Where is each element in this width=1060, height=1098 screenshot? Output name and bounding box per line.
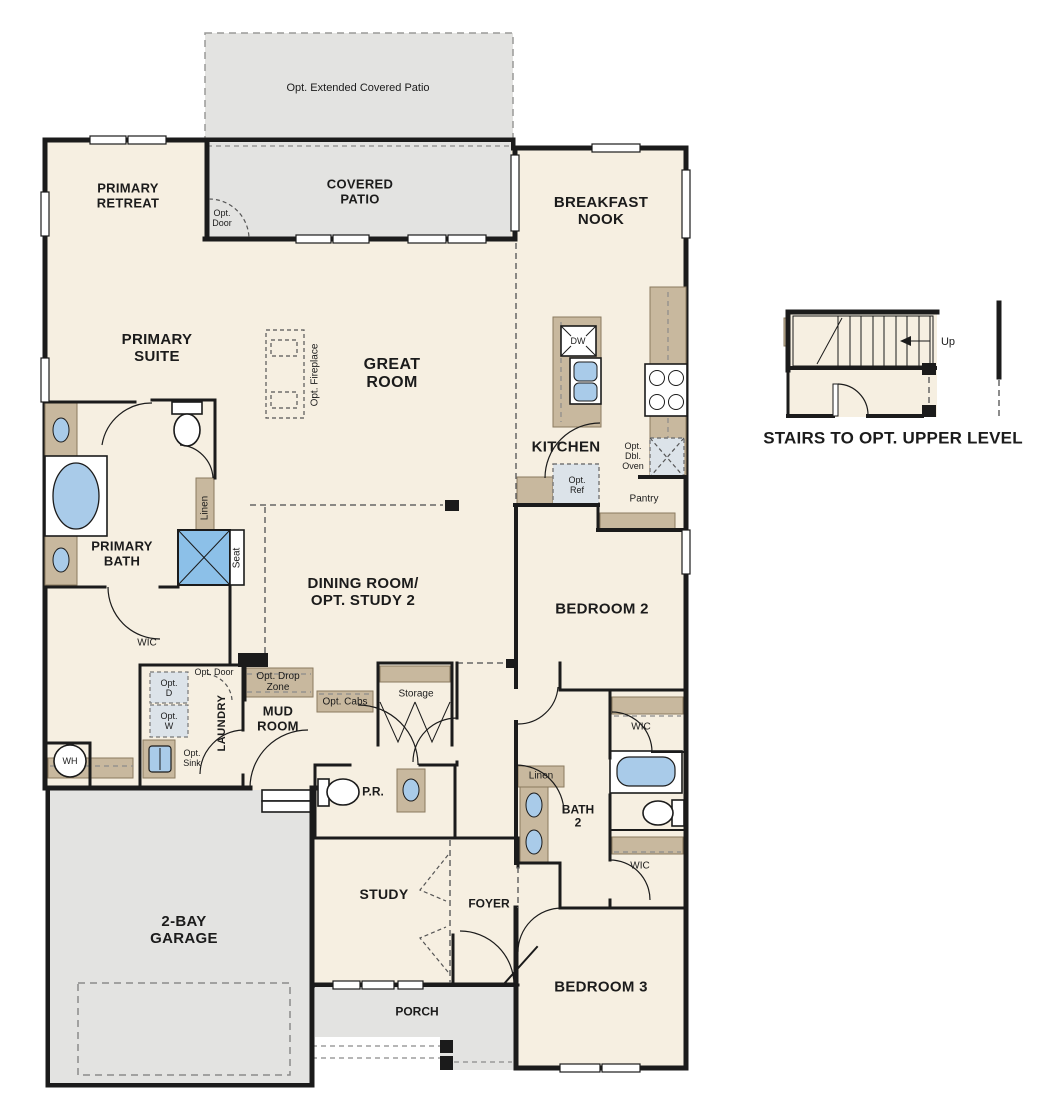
label-opt-extended-patio: Opt. Extended Covered Patio (286, 82, 429, 94)
label-powder-room: P.R. (362, 785, 384, 798)
label-opt-washer: Opt. W (160, 711, 177, 731)
window-icon (398, 981, 423, 989)
laundry-sink-icon (149, 746, 171, 772)
bathtub-icon (610, 751, 682, 793)
label-opt-drop-zone: Opt. Drop Zone (256, 671, 299, 693)
toilet-icon (172, 402, 202, 446)
window-icon (408, 235, 446, 243)
label-garage: 2-BAY GARAGE (150, 914, 218, 948)
double-oven-icon (650, 438, 684, 477)
label-linen-bath2: Linen (529, 770, 553, 781)
toilet-icon (643, 800, 684, 826)
label-dining-room: DINING ROOM/ OPT. STUDY 2 (307, 576, 418, 610)
label-primary-bath: PRIMARY BATH (91, 539, 153, 568)
sink-icon (526, 830, 542, 854)
window-icon (682, 170, 690, 238)
label-stairs-up: Up (941, 336, 955, 348)
floor-plan: Opt. Extended Covered Patio PRIMARY RETR… (0, 0, 1060, 1098)
label-seat: Seat (231, 548, 242, 569)
window-icon (333, 981, 360, 989)
label-bedroom-3: BEDROOM 3 (554, 980, 648, 997)
label-mud-room: MUD ROOM (257, 704, 299, 733)
toilet-icon (318, 779, 359, 806)
window-icon (560, 1064, 600, 1072)
window-icon (41, 192, 49, 236)
window-icon (296, 235, 331, 243)
label-opt-sink: Opt. Sink (183, 748, 201, 768)
label-primary-suite: PRIMARY SUITE (122, 332, 193, 366)
label-linen-primary: Linen (199, 496, 210, 520)
stairs-inset (788, 303, 999, 417)
sink-icon (526, 793, 542, 817)
label-bedroom-2: BEDROOM 2 (555, 602, 649, 619)
label-covered-patio: COVERED PATIO (327, 177, 393, 206)
label-breakfast-nook: BREAKFAST NOOK (554, 195, 648, 229)
window-icon (333, 235, 369, 243)
label-opt-dryer: Opt. D (160, 678, 177, 698)
label-wic-bedroom3: WIC (630, 860, 649, 871)
label-laundry: LAUNDRY (216, 695, 228, 752)
label-porch: PORCH (395, 1005, 438, 1018)
label-opt-dbl-oven: Opt. Dbl. Oven (622, 441, 644, 471)
label-dishwasher: DW (571, 336, 586, 346)
window-icon (592, 144, 640, 152)
label-opt-door-patio: Opt. Door (212, 208, 232, 228)
label-wic-primary: WIC (137, 637, 156, 648)
label-pantry: Pantry (630, 493, 659, 504)
garage-steps (262, 790, 312, 812)
double-sink-icon (570, 358, 601, 404)
window-icon (448, 235, 486, 243)
label-bath-2: BATH 2 (562, 804, 594, 831)
label-opt-door-laundry: Opt. Door (194, 667, 233, 677)
window-icon (128, 136, 166, 144)
window-icon (41, 358, 49, 402)
label-wic-bedroom2: WIC (631, 721, 650, 732)
window-icon (511, 155, 519, 231)
label-water-heater: WH (63, 756, 78, 766)
label-foyer: FOYER (468, 897, 509, 910)
label-stairs-caption: STAIRS TO OPT. UPPER LEVEL (763, 428, 1023, 447)
label-storage: Storage (398, 688, 433, 699)
window-icon (362, 981, 394, 989)
label-opt-ref: Opt. Ref (568, 475, 585, 495)
range-icon (645, 364, 687, 416)
label-great-room: GREAT ROOM (364, 356, 421, 392)
label-opt-cabs: Opt. Cabs (322, 696, 367, 707)
porch-post (440, 1056, 453, 1070)
window-icon (682, 530, 690, 574)
window-icon (90, 136, 126, 144)
label-kitchen: KITCHEN (532, 440, 601, 457)
bathtub-icon (45, 456, 107, 536)
sink-icon (53, 548, 69, 572)
porch-post (440, 1040, 453, 1053)
label-opt-fireplace: Opt. Fireplace (309, 344, 320, 407)
label-primary-retreat: PRIMARY RETREAT (97, 181, 160, 210)
sink-icon (403, 779, 419, 801)
window-icon (602, 1064, 640, 1072)
label-study: STUDY (360, 887, 409, 903)
sink-icon (53, 418, 69, 442)
